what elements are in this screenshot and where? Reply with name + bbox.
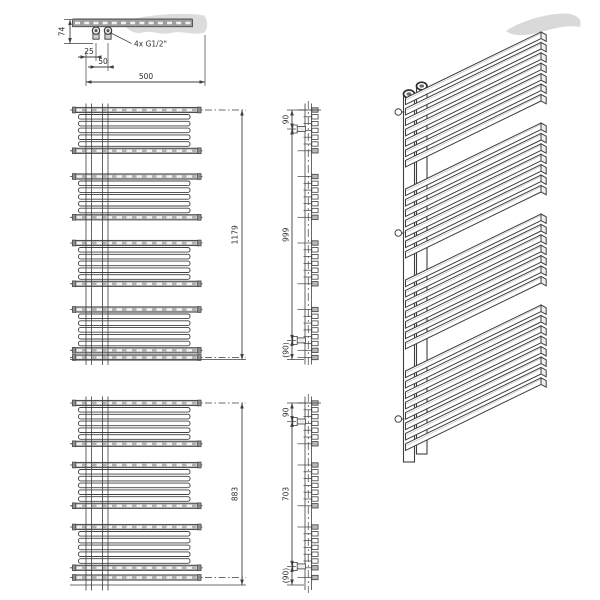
tube-end-cap bbox=[72, 347, 75, 353]
tube-end-cap bbox=[198, 148, 201, 154]
tube-row-white bbox=[79, 188, 191, 193]
dim-label-bottom-90-tall: (90) bbox=[282, 342, 291, 357]
tube-end bbox=[312, 314, 318, 318]
tube-end bbox=[312, 442, 318, 446]
iso-tube-cap bbox=[541, 154, 546, 163]
tube-end bbox=[312, 545, 318, 549]
dim-arrow bbox=[290, 110, 294, 116]
tube-end-cap bbox=[198, 462, 201, 468]
tube-end-cap bbox=[198, 524, 201, 530]
tube-end bbox=[312, 532, 318, 536]
tube-end-cap bbox=[72, 503, 75, 509]
tube-row-white bbox=[79, 195, 191, 200]
tube-end-cap bbox=[198, 575, 201, 581]
iso-tube-cap bbox=[541, 357, 546, 366]
tube-row-white bbox=[79, 135, 191, 140]
bracket-circle bbox=[395, 109, 402, 116]
tube-end-cap bbox=[72, 107, 75, 113]
side-view-short bbox=[287, 394, 321, 593]
tube-row-white bbox=[79, 261, 191, 266]
tube-row-white bbox=[79, 552, 191, 557]
dim-label-top-90-short: 90 bbox=[282, 407, 291, 417]
tube-end bbox=[312, 181, 318, 185]
iso-tube-cap bbox=[541, 326, 546, 335]
tube-row-white bbox=[79, 201, 191, 206]
tube-row-white bbox=[79, 476, 191, 481]
dim-arrow bbox=[240, 580, 244, 586]
iso-tube-cap bbox=[541, 63, 546, 72]
leader-line bbox=[110, 33, 132, 44]
dim-arrow bbox=[200, 80, 206, 84]
iso-tube-cap bbox=[541, 276, 546, 285]
radiator-technical-drawing: 74 25 50 500 4x G1/2" 1179 90 999 (90) 8… bbox=[0, 0, 600, 600]
iso-tube-cap bbox=[541, 367, 546, 376]
tube-end-cap bbox=[72, 575, 75, 581]
tube-end bbox=[312, 149, 318, 153]
tube-end bbox=[312, 421, 318, 425]
dim-arrow bbox=[91, 65, 97, 69]
tube-end-cap bbox=[72, 281, 75, 287]
dim-arrow bbox=[108, 65, 114, 69]
iso-tube-cap bbox=[541, 175, 546, 184]
dim-label-height-1179: 1179 bbox=[231, 225, 240, 244]
tube-row-white bbox=[79, 268, 191, 273]
tube-row-white bbox=[79, 538, 191, 543]
tube-end-cap bbox=[198, 281, 201, 287]
tube-row-white bbox=[79, 121, 191, 126]
iso-tube-cap bbox=[541, 165, 546, 174]
tube-row-white bbox=[79, 559, 191, 564]
tube-end bbox=[312, 497, 318, 501]
tube-end bbox=[312, 341, 318, 345]
tube-end bbox=[312, 463, 318, 467]
iso-tube-cap bbox=[541, 84, 546, 93]
dim-label-offset-25: 25 bbox=[84, 47, 94, 56]
tube-end bbox=[312, 188, 318, 192]
tube-end bbox=[312, 307, 318, 311]
tube-row-white bbox=[79, 254, 191, 259]
tube-end-cap bbox=[72, 240, 75, 246]
connector-bore bbox=[107, 29, 110, 32]
iso-tube-cap bbox=[541, 32, 546, 41]
tube-row-white bbox=[79, 181, 191, 186]
tube-end-cap bbox=[198, 347, 201, 353]
bracket-circle bbox=[395, 230, 402, 237]
tube-end bbox=[312, 121, 318, 125]
tube-end-cap bbox=[198, 503, 201, 509]
tube-end-cap bbox=[198, 107, 201, 113]
tube-end bbox=[312, 470, 318, 474]
tube-end-cap bbox=[198, 307, 201, 313]
front-view-short bbox=[70, 397, 246, 591]
tube-end bbox=[312, 348, 318, 352]
tube-end-cap bbox=[198, 214, 201, 220]
tube-row-white bbox=[79, 435, 191, 440]
tube-row-white bbox=[79, 321, 191, 326]
tube-row-white bbox=[79, 208, 191, 213]
tube-end bbox=[312, 476, 318, 480]
tube-end-cap bbox=[72, 462, 75, 468]
tube-end bbox=[312, 408, 318, 412]
tube-end bbox=[312, 115, 318, 119]
dim-label-top-90-tall: 90 bbox=[282, 115, 291, 125]
connector-bore bbox=[95, 29, 98, 32]
iso-tube-cap bbox=[541, 94, 546, 103]
tube-end bbox=[312, 552, 318, 556]
tube-row-white bbox=[79, 142, 191, 147]
dim-arrow bbox=[68, 38, 72, 44]
tube-end-cap bbox=[198, 240, 201, 246]
drawing-page: 74 25 50 500 4x G1/2" 1179 90 999 (90) 8… bbox=[0, 0, 600, 600]
tube-row-white bbox=[79, 545, 191, 550]
tube-end bbox=[312, 504, 318, 508]
iso-tube-cap bbox=[541, 378, 546, 387]
tube-end bbox=[312, 490, 318, 494]
iso-view-shadow bbox=[506, 13, 581, 35]
iso-tube-cap bbox=[541, 53, 546, 62]
tube-row-white bbox=[79, 115, 191, 120]
dim-arrow bbox=[240, 403, 244, 409]
tube-end-cap bbox=[72, 214, 75, 220]
dim-label-height-883: 883 bbox=[231, 487, 240, 502]
dim-arrow bbox=[86, 80, 92, 84]
tube-row-white bbox=[79, 328, 191, 333]
front-view-tall bbox=[70, 104, 246, 366]
tube-row-white bbox=[79, 532, 191, 537]
tube-end-cap bbox=[198, 565, 201, 571]
tube-end-cap bbox=[198, 174, 201, 180]
tube-end bbox=[312, 135, 318, 139]
tube-row-white bbox=[79, 414, 191, 419]
dim-arrow bbox=[240, 110, 244, 116]
tube-end-cap bbox=[72, 524, 75, 530]
tube-end bbox=[312, 328, 318, 332]
tube-end-cap bbox=[72, 174, 75, 180]
iso-tube-cap bbox=[541, 245, 546, 254]
tube-end-cap bbox=[72, 307, 75, 313]
bracket-circle bbox=[395, 416, 402, 423]
iso-tube-cap bbox=[541, 235, 546, 244]
tube-end bbox=[312, 254, 318, 258]
tube-end-cap bbox=[72, 565, 75, 571]
tube-end bbox=[312, 208, 318, 212]
iso-tube-cap bbox=[541, 214, 546, 223]
tube-end bbox=[312, 355, 318, 359]
tube-end bbox=[312, 538, 318, 542]
side-view-tall bbox=[287, 101, 321, 368]
tube-end bbox=[312, 559, 318, 563]
dim-label-spacing-50: 50 bbox=[98, 57, 108, 66]
tube-end bbox=[312, 142, 318, 146]
iso-tube-cap bbox=[541, 336, 546, 345]
iso-tube-cap bbox=[541, 266, 546, 275]
connection-label: 4x G1/2" bbox=[134, 40, 167, 49]
tube-end bbox=[312, 215, 318, 219]
tube-row-white bbox=[79, 334, 191, 339]
tube-row-white bbox=[79, 483, 191, 488]
iso-tube-cap bbox=[541, 123, 546, 132]
iso-tube-cap bbox=[541, 42, 546, 51]
tube-row-white bbox=[79, 248, 191, 253]
tube-end bbox=[312, 525, 318, 529]
tube-end bbox=[312, 428, 318, 432]
iso-tube-cap bbox=[541, 133, 546, 142]
iso-tube-cap bbox=[541, 315, 546, 324]
tube-row-white bbox=[79, 421, 191, 426]
tube-end bbox=[312, 566, 318, 570]
tube-end bbox=[312, 241, 318, 245]
tube-end bbox=[312, 275, 318, 279]
tube-row-white bbox=[79, 408, 191, 413]
tube-row-white bbox=[79, 314, 191, 319]
tube-end-cap bbox=[72, 441, 75, 447]
tube-end-cap bbox=[72, 148, 75, 154]
tube-end bbox=[312, 483, 318, 487]
dim-arrow bbox=[68, 20, 72, 26]
dim-label-width-500: 500 bbox=[139, 72, 154, 81]
tube-end-cap bbox=[198, 441, 201, 447]
pipe-bore bbox=[419, 84, 424, 87]
tube-end bbox=[312, 335, 318, 339]
tube-end bbox=[312, 248, 318, 252]
tube-end bbox=[312, 128, 318, 132]
tube-end bbox=[312, 414, 318, 418]
iso-view bbox=[395, 32, 546, 462]
dim-arrow bbox=[290, 580, 294, 586]
dim-arrow bbox=[290, 354, 294, 360]
dim-label-depth-74: 74 bbox=[58, 27, 67, 37]
tube-row-white bbox=[79, 470, 191, 475]
tube-row-white bbox=[79, 341, 191, 346]
tube-end bbox=[312, 202, 318, 206]
tube-end bbox=[312, 195, 318, 199]
tube-row-white bbox=[79, 128, 191, 133]
dim-label-bottom-90-short: (90) bbox=[282, 568, 291, 583]
tube-end bbox=[312, 435, 318, 439]
tube-end bbox=[312, 321, 318, 325]
tube-end bbox=[312, 268, 318, 272]
iso-tube-cap bbox=[541, 74, 546, 83]
tube-row-white bbox=[79, 497, 191, 502]
tube-end bbox=[312, 174, 318, 178]
tube-end bbox=[312, 282, 318, 286]
iso-tube-cap bbox=[541, 185, 546, 194]
dim-label-span-703: 703 bbox=[282, 487, 291, 502]
iso-tube-cap bbox=[541, 144, 546, 153]
tube-row-white bbox=[79, 275, 191, 280]
dim-arrow bbox=[290, 403, 294, 409]
dim-arrow bbox=[240, 354, 244, 360]
tube-end bbox=[312, 575, 318, 579]
iso-tube-cap bbox=[541, 305, 546, 314]
tube-end-cap bbox=[198, 400, 201, 406]
tube-end bbox=[312, 261, 318, 265]
iso-tube-cap bbox=[541, 224, 546, 233]
tube-row-white bbox=[79, 490, 191, 495]
iso-tube-cap bbox=[541, 347, 546, 356]
tube-row-white bbox=[79, 428, 191, 433]
dim-label-span-999: 999 bbox=[282, 227, 291, 242]
iso-tube-cap bbox=[541, 256, 546, 265]
tube-end-cap bbox=[72, 400, 75, 406]
